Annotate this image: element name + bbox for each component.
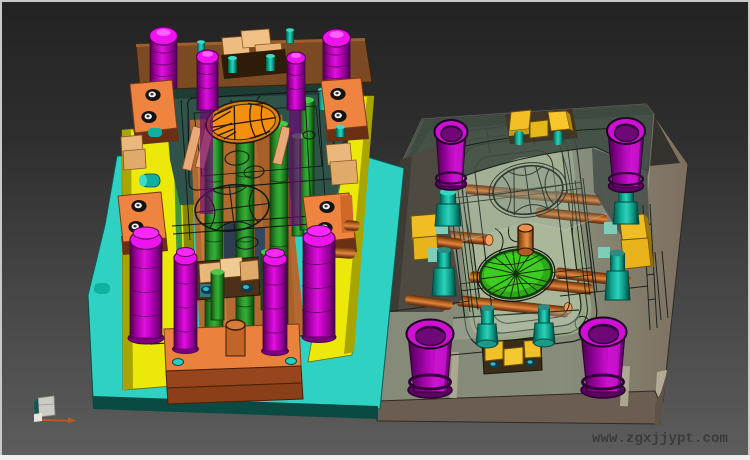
svg-text:www.zgxjjypt.com: www.zgxjjypt.com xyxy=(592,431,728,447)
